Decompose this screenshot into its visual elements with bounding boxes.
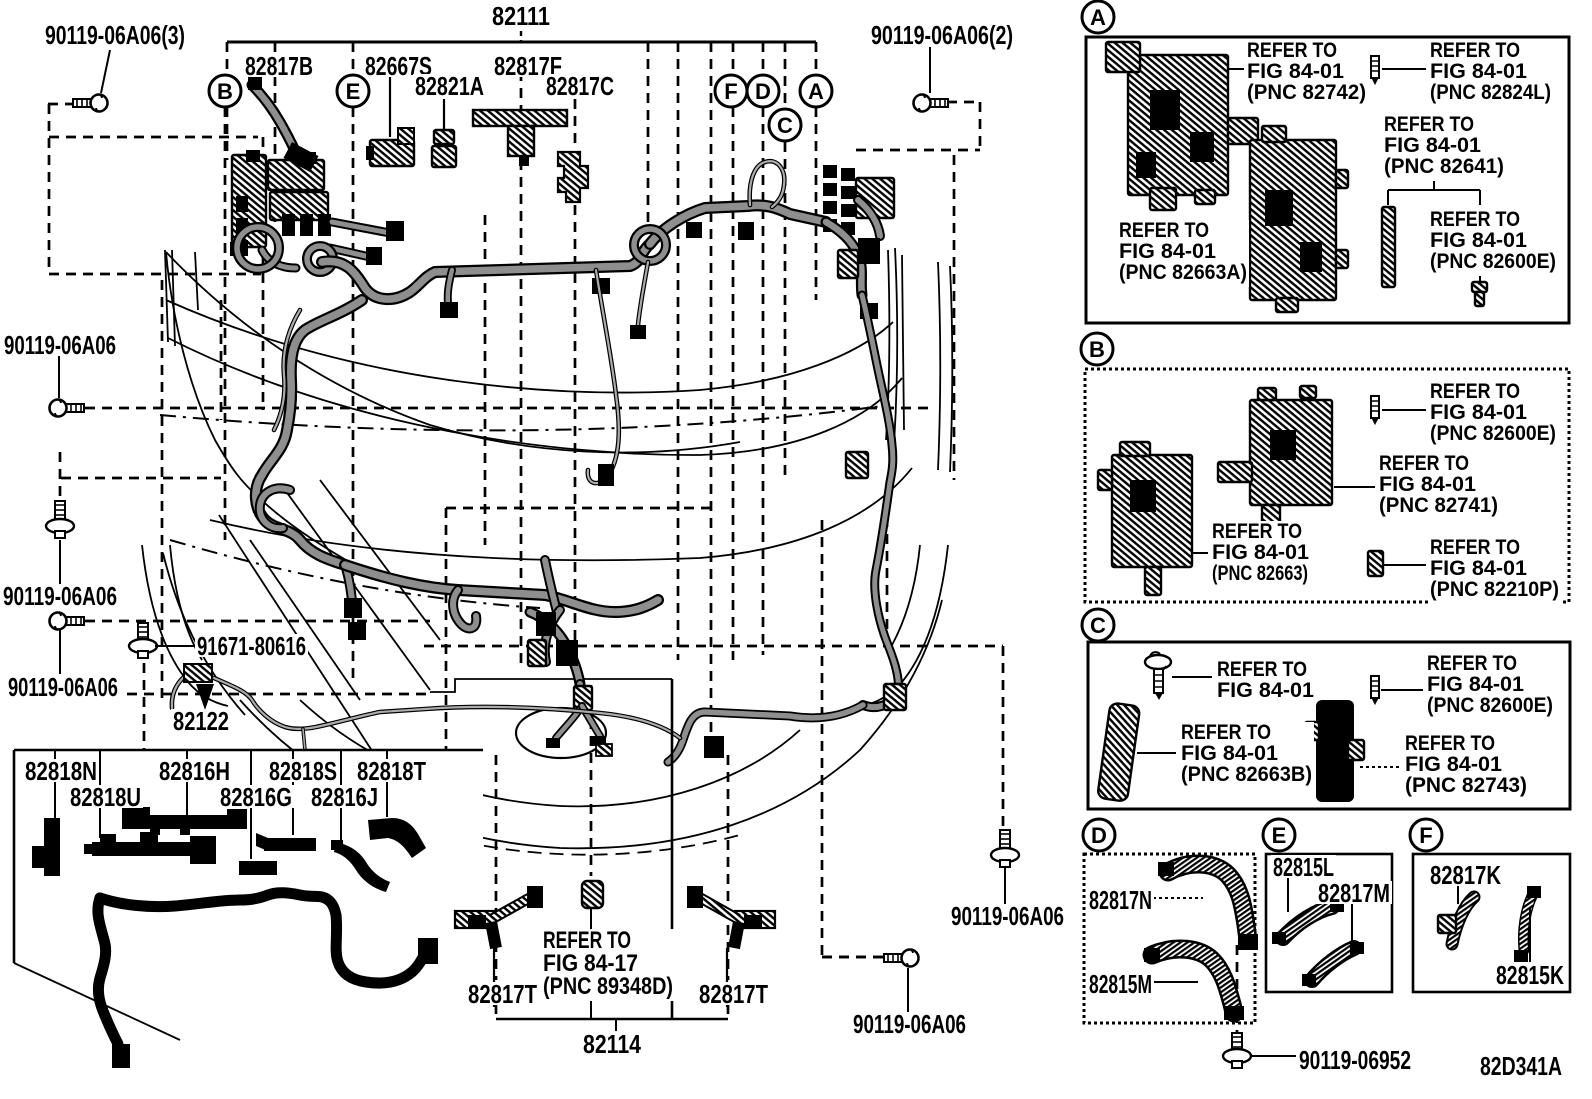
- svg-text:82815M: 82815M: [1089, 969, 1152, 999]
- svg-text:A: A: [1090, 5, 1106, 30]
- svg-text:REFER TO: REFER TO: [1430, 536, 1520, 559]
- svg-text:FIG 84-01: FIG 84-01: [1217, 679, 1314, 702]
- svg-text:A: A: [808, 79, 824, 104]
- svg-text:E: E: [346, 79, 361, 104]
- svg-text:REFER TO: REFER TO: [1430, 39, 1520, 62]
- svg-text:82818U: 82818U: [70, 782, 141, 812]
- svg-text:(PNC 82663A): (PNC 82663A): [1119, 261, 1247, 284]
- svg-text:82817T: 82817T: [468, 979, 537, 1009]
- svg-text:FIG 84-01: FIG 84-01: [1430, 557, 1527, 580]
- svg-text:FIG 84-01: FIG 84-01: [1430, 401, 1527, 424]
- svg-text:82817M: 82817M: [1318, 878, 1390, 908]
- svg-text:82D341A: 82D341A: [1480, 1051, 1562, 1081]
- svg-text:REFER TO: REFER TO: [1430, 208, 1520, 231]
- svg-text:(PNC 82600E): (PNC 82600E): [1427, 694, 1553, 717]
- svg-text:(PNC 82743): (PNC 82743): [1405, 774, 1527, 797]
- svg-text:82816G: 82816G: [220, 782, 292, 812]
- svg-text:82815K: 82815K: [1496, 960, 1564, 990]
- svg-text:91671-80616: 91671-80616: [197, 631, 306, 661]
- svg-text:REFER TO: REFER TO: [1247, 39, 1337, 62]
- svg-text:FIG 84-01: FIG 84-01: [1181, 742, 1278, 765]
- svg-text:(PNC 82741): (PNC 82741): [1379, 494, 1498, 517]
- svg-text:90119-06A06: 90119-06A06: [951, 901, 1064, 931]
- svg-text:(PNC 82641): (PNC 82641): [1384, 155, 1504, 178]
- svg-text:82817B: 82817B: [245, 51, 313, 81]
- svg-text:F: F: [1419, 823, 1432, 848]
- svg-text:(PNC 82663B): (PNC 82663B): [1181, 763, 1312, 786]
- svg-text:C: C: [1090, 613, 1106, 638]
- svg-text:FIG 84-01: FIG 84-01: [1430, 229, 1527, 252]
- svg-text:FIG 84-01: FIG 84-01: [1427, 673, 1524, 696]
- svg-text:B: B: [1089, 337, 1105, 362]
- svg-text:(PNC 82600E): (PNC 82600E): [1430, 422, 1556, 445]
- svg-text:B: B: [217, 79, 233, 104]
- svg-text:D: D: [1091, 823, 1107, 848]
- svg-text:D: D: [755, 79, 771, 104]
- svg-text:REFER TO: REFER TO: [1217, 658, 1307, 681]
- svg-text:REFER TO: REFER TO: [1427, 652, 1517, 675]
- svg-text:FIG 84-01: FIG 84-01: [1379, 473, 1476, 496]
- svg-text:C: C: [777, 113, 793, 138]
- svg-text:FIG 84-01: FIG 84-01: [1212, 541, 1309, 564]
- svg-text:FIG 84-01: FIG 84-01: [1119, 240, 1216, 263]
- svg-text:FIG 84-01: FIG 84-01: [1405, 753, 1502, 776]
- svg-text:90119-06A06: 90119-06A06: [4, 330, 116, 360]
- svg-text:(PNC 82824L): (PNC 82824L): [1430, 81, 1551, 104]
- svg-text:82817K: 82817K: [1430, 860, 1501, 890]
- svg-text:E: E: [1272, 823, 1287, 848]
- svg-text:82821A: 82821A: [415, 71, 484, 101]
- svg-text:90119-06952: 90119-06952: [1299, 1045, 1411, 1075]
- svg-text:FIG 84-01: FIG 84-01: [1430, 60, 1527, 83]
- svg-text:90119-06A06: 90119-06A06: [853, 1009, 966, 1039]
- svg-text:82817N: 82817N: [1089, 885, 1152, 915]
- svg-text:REFER TO: REFER TO: [1384, 113, 1474, 136]
- svg-text:REFER TO: REFER TO: [1181, 721, 1271, 744]
- svg-text:REFER TO: REFER TO: [1212, 520, 1302, 543]
- svg-text:REFER TO: REFER TO: [1119, 219, 1209, 242]
- svg-text:FIG 84-01: FIG 84-01: [1247, 60, 1344, 83]
- svg-text:FIG 84-01: FIG 84-01: [1384, 134, 1481, 157]
- svg-text:82114: 82114: [583, 1029, 641, 1059]
- svg-text:90119-06A06(2): 90119-06A06(2): [871, 20, 1013, 50]
- svg-text:82111: 82111: [492, 1, 550, 31]
- svg-text:82817C: 82817C: [546, 71, 614, 101]
- svg-text:82122: 82122: [173, 706, 229, 736]
- svg-text:90119-06A06: 90119-06A06: [3, 581, 117, 611]
- svg-text:90119-06A06(3): 90119-06A06(3): [45, 20, 185, 50]
- svg-text:90119-06A06: 90119-06A06: [8, 672, 118, 702]
- svg-text:(PNC 82600E): (PNC 82600E): [1430, 250, 1556, 273]
- svg-text:(PNC 82742): (PNC 82742): [1247, 81, 1366, 104]
- svg-text:REFER TO: REFER TO: [1405, 732, 1495, 755]
- svg-text:(PNC 89348D): (PNC 89348D): [543, 973, 673, 1000]
- svg-text:82817T: 82817T: [699, 979, 768, 1009]
- svg-text:F: F: [724, 79, 737, 104]
- svg-text:82816J: 82816J: [311, 782, 378, 812]
- svg-text:REFER TO: REFER TO: [1430, 380, 1520, 403]
- svg-text:(PNC 82663): (PNC 82663): [1212, 562, 1308, 585]
- svg-text:(PNC 82210P): (PNC 82210P): [1430, 578, 1559, 601]
- svg-text:REFER TO: REFER TO: [1379, 452, 1469, 475]
